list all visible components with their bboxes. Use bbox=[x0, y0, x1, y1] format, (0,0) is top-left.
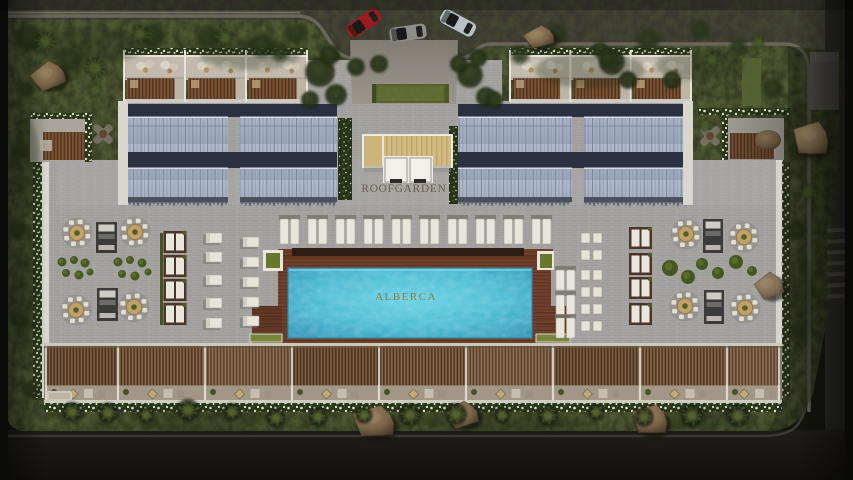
svg-text:ROOFGARDEN: ROOFGARDEN bbox=[361, 183, 446, 195]
svg-text:ALBERCA: ALBERCA bbox=[375, 291, 437, 303]
